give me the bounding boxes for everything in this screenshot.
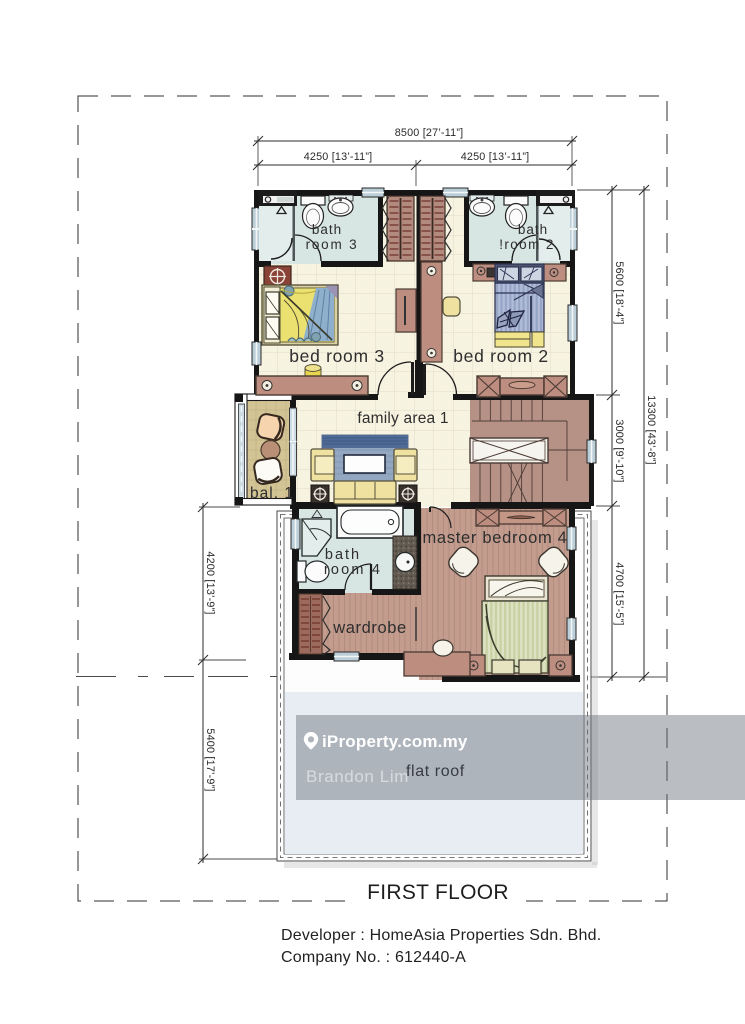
svg-text:bal. 1: bal. 1 — [250, 485, 294, 502]
svg-text:!room 2: !room 2 — [499, 237, 555, 252]
svg-text:bed room 3: bed room 3 — [289, 346, 385, 366]
svg-text:Developer : HomeAsia Propertie: Developer : HomeAsia Properties Sdn. Bhd… — [281, 927, 601, 944]
svg-text:5400 [17’-9”]: 5400 [17’-9”] — [204, 728, 216, 791]
svg-text:master bedroom 4: master bedroom 4 — [422, 529, 567, 547]
svg-text:iProperty.com.my: iProperty.com.my — [322, 732, 468, 751]
svg-text:Company No. : 612440-A: Company No. : 612440-A — [281, 949, 466, 966]
svg-text:4250 [13’-11”]: 4250 [13’-11”] — [304, 151, 373, 163]
svg-text:room 3: room 3 — [306, 237, 359, 252]
svg-text:wardrobe: wardrobe — [332, 619, 407, 637]
svg-text:FIRST FLOOR: FIRST FLOOR — [367, 881, 509, 904]
svg-text:bed room 2: bed room 2 — [453, 346, 549, 366]
svg-text:5600 [18’-4”]: 5600 [18’-4”] — [613, 261, 625, 324]
svg-text:4700 [15’-5”]: 4700 [15’-5”] — [613, 562, 625, 625]
svg-text:flat roof: flat roof — [406, 763, 465, 780]
svg-text:family area 1: family area 1 — [357, 410, 448, 427]
svg-text:bath: bath — [325, 547, 361, 563]
svg-text:bath: bath — [518, 222, 548, 237]
svg-text:4250 [13’-11”]: 4250 [13’-11”] — [461, 151, 530, 163]
svg-text:4200 [13’-9”]: 4200 [13’-9”] — [204, 551, 216, 614]
svg-text:13300 [43’-8”]: 13300 [43’-8”] — [645, 395, 657, 464]
svg-text:3000 [9’-10”]: 3000 [9’-10”] — [613, 419, 625, 482]
svg-text:room 4: room 4 — [324, 562, 382, 578]
svg-text:8500 [27’-11”]: 8500 [27’-11”] — [395, 127, 464, 139]
svg-text:Brandon Lim: Brandon Lim — [306, 767, 409, 786]
svg-text:bath: bath — [312, 222, 342, 237]
